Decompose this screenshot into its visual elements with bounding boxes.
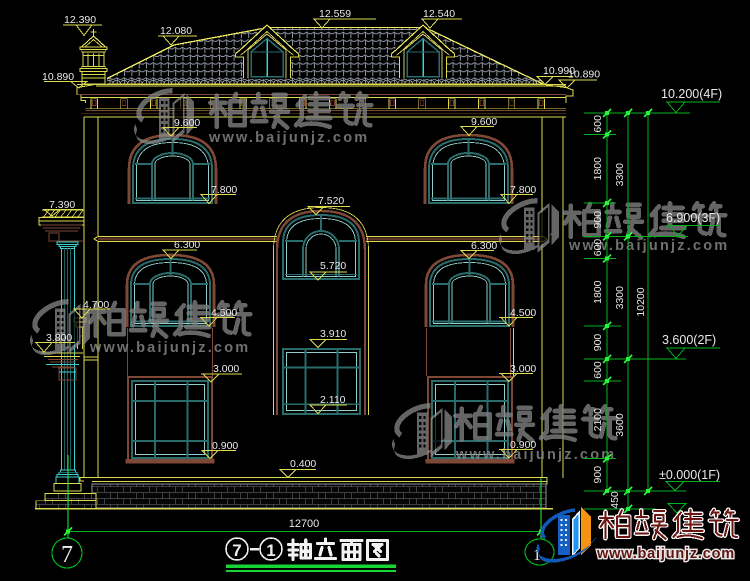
svg-text:10.200(4F): 10.200(4F) — [661, 87, 722, 101]
svg-text:www.baijunjz.com: www.baijunjz.com — [89, 340, 250, 356]
svg-text:1800: 1800 — [592, 280, 604, 304]
svg-text:6.900(3F): 6.900(3F) — [666, 211, 720, 225]
svg-text:3600: 3600 — [614, 413, 626, 437]
svg-text:12.080: 12.080 — [160, 25, 192, 37]
svg-text:450: 450 — [609, 491, 621, 509]
svg-text:www.baijunjz.com: www.baijunjz.com — [208, 130, 369, 146]
svg-text:5.720: 5.720 — [320, 260, 346, 272]
svg-text:600: 600 — [592, 361, 604, 379]
svg-text:3.000: 3.000 — [213, 363, 239, 375]
svg-text:3300: 3300 — [614, 286, 626, 310]
svg-text:6.300: 6.300 — [174, 239, 200, 251]
svg-text:3.600(2F): 3.600(2F) — [662, 333, 716, 347]
svg-text:900: 900 — [592, 466, 604, 484]
svg-text:600: 600 — [592, 115, 604, 133]
svg-text:2100: 2100 — [592, 408, 604, 432]
svg-text:12.390: 12.390 — [64, 14, 96, 26]
svg-text:www.baijunjz.com: www.baijunjz.com — [596, 546, 735, 562]
svg-text:0.400: 0.400 — [290, 458, 316, 470]
svg-text:2.110: 2.110 — [320, 394, 346, 406]
svg-text:10.890: 10.890 — [568, 69, 600, 81]
svg-text:12.540: 12.540 — [423, 8, 455, 20]
svg-text:12.559: 12.559 — [319, 8, 351, 20]
svg-text:7: 7 — [61, 542, 73, 568]
svg-text:7.520: 7.520 — [318, 195, 344, 207]
svg-text:±0.000(1F): ±0.000(1F) — [659, 468, 720, 482]
svg-text:12700: 12700 — [289, 518, 320, 530]
svg-text:3.910: 3.910 — [320, 328, 346, 340]
svg-text:10200: 10200 — [635, 287, 647, 316]
svg-text:3300: 3300 — [614, 163, 626, 187]
svg-text:1800: 1800 — [592, 157, 604, 181]
svg-text:7: 7 — [232, 541, 241, 560]
svg-text:900: 900 — [592, 334, 604, 352]
svg-text:600: 600 — [592, 239, 604, 257]
svg-text:900: 900 — [592, 211, 604, 229]
svg-text:1: 1 — [266, 541, 275, 560]
